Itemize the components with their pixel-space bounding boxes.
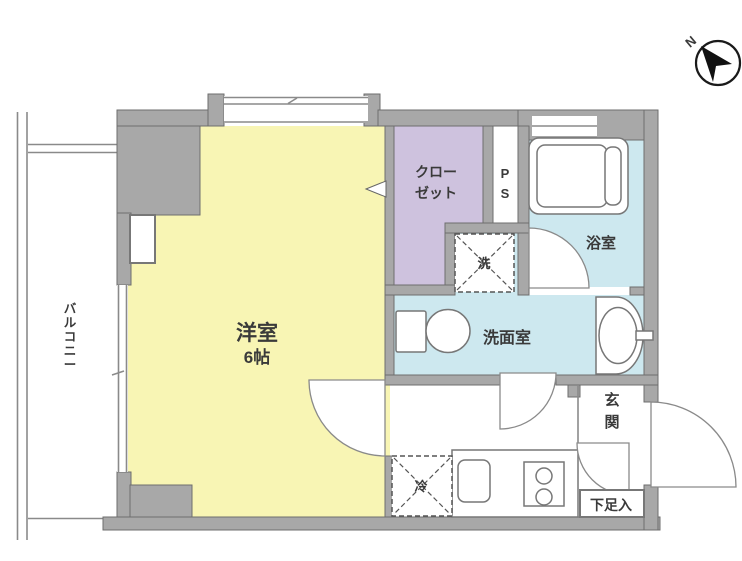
wall-segment: [630, 287, 644, 295]
label-fridge: 冷: [414, 479, 427, 494]
label-balcony-char1: バ: [64, 302, 77, 316]
label-closet-line2: ゼット: [415, 185, 457, 201]
wall-segment: [117, 110, 212, 126]
wall-segment: [385, 375, 500, 385]
label-shoe-cabinet: 下足入: [590, 497, 632, 513]
wall-segment: [644, 485, 658, 530]
label-genkan-char1: 玄: [604, 391, 619, 409]
stove-burner: [536, 489, 552, 505]
wall-segment: [518, 126, 529, 295]
wash-basin-faucet: [636, 331, 653, 340]
wall-segment: [378, 110, 518, 126]
wall-segment: [385, 285, 455, 295]
wall-segment: [644, 110, 658, 402]
kitchen-sink: [458, 460, 490, 502]
label-ps-p: P: [501, 166, 510, 181]
wall-segment: [208, 94, 224, 126]
label-ps-s: S: [501, 186, 510, 201]
floor-plan-svg: N 洋室 6帖 クロー ゼット P S 浴室 洗 洗面室 冷 玄 関 下足入 バ…: [0, 0, 742, 561]
label-closet-line1: クロー: [415, 164, 457, 180]
wall-segment: [385, 126, 394, 380]
label-balcony-char2: ル: [64, 316, 77, 330]
wall-segment: [117, 472, 131, 518]
wall-segment: [103, 517, 660, 530]
wall-segment: [556, 375, 658, 385]
label-balcony-char5: ー: [64, 358, 77, 372]
floor-plan: N 洋室 6帖 クロー ゼット P S 浴室 洗 洗面室 冷 玄 関 下足入 バ…: [0, 0, 742, 561]
label-washroom: 洗面室: [483, 328, 531, 347]
bay-window: [224, 96, 368, 123]
wall-niche: [130, 215, 155, 263]
label-bathroom: 浴室: [586, 234, 616, 252]
label-main-room: 洋室: [236, 321, 278, 345]
bathtub-ledge: [605, 147, 621, 205]
wash-basin-bowl: [599, 308, 637, 364]
wall-segment: [130, 485, 192, 517]
toilet-tank: [396, 311, 426, 352]
label-main-room-size: 6帖: [244, 347, 270, 367]
label-balcony-char3: コ: [64, 330, 77, 344]
wall-segment: [483, 126, 493, 233]
stove-burner: [536, 468, 552, 484]
label-genkan-char2: 関: [604, 414, 619, 431]
label-balcony-char4: ニ: [64, 344, 77, 358]
wall-segment: [117, 213, 131, 285]
wall-segment: [445, 223, 529, 233]
label-washer: 洗: [477, 256, 490, 271]
toilet-bowl: [426, 310, 470, 353]
bathtub-inner: [537, 145, 607, 207]
